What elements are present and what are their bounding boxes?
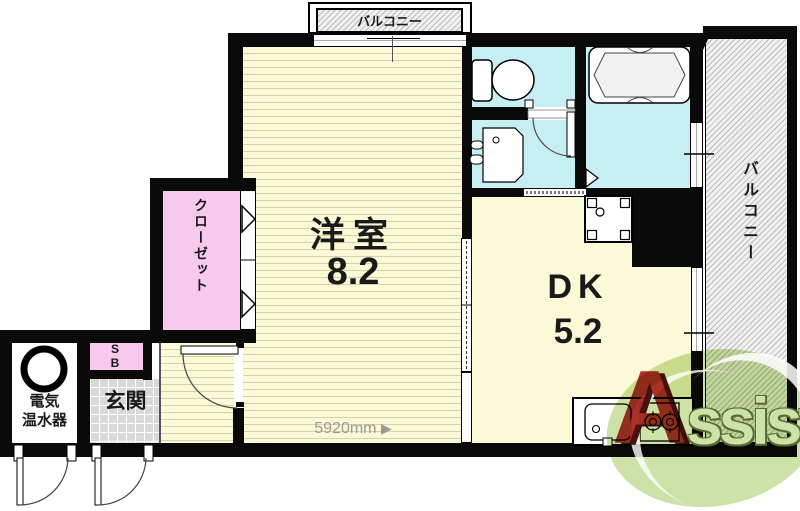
entrance-door-swing-icon xyxy=(98,458,146,505)
wall-segment xyxy=(462,33,472,238)
entrance-label: 玄関 xyxy=(90,385,161,415)
window-icon xyxy=(691,267,703,352)
wall-segment xyxy=(690,33,703,122)
window-icon xyxy=(314,34,466,47)
door-panel xyxy=(95,458,101,505)
hallway-floor xyxy=(161,343,234,443)
balcony-top: バルコニー xyxy=(316,8,463,33)
assist-logo-letter-a: A xyxy=(612,356,687,460)
wall-segment xyxy=(575,33,586,196)
wall-segment xyxy=(150,330,256,343)
wall-pipe-space xyxy=(632,188,703,267)
room-dk-area: 5.2 xyxy=(472,312,684,352)
room-toilet xyxy=(472,47,575,107)
window-icon xyxy=(690,122,703,188)
dimension-value: 5920mm xyxy=(314,420,376,437)
wall-segment xyxy=(77,343,90,457)
wall-segment xyxy=(0,330,161,343)
floorplan-canvas: バルコニー バルコニー xyxy=(0,0,800,511)
wall-segment xyxy=(462,188,632,197)
closet-label: クローゼット xyxy=(191,198,211,326)
room-washroom xyxy=(472,120,575,188)
shoe-box-label: SB xyxy=(108,342,122,372)
door-panel xyxy=(17,458,23,505)
dimension-arrow-icon: ▶ xyxy=(381,420,392,436)
water-heater-label-line2: 温水器 xyxy=(10,409,79,430)
room-bathroom xyxy=(586,47,690,188)
balcony-outer-wall xyxy=(703,26,797,38)
room-western-area: 8.2 xyxy=(243,251,463,294)
wall-segment xyxy=(0,330,12,457)
assist-logo-text: ssist xyxy=(686,388,800,454)
water-heater-label-line1: 電気 xyxy=(12,390,77,411)
wall-segment xyxy=(462,107,528,120)
dimension-label: 5920mm ▶ xyxy=(243,420,463,438)
balcony-top-label: バルコニー xyxy=(357,11,422,30)
wall-segment xyxy=(228,33,243,190)
wall-segment xyxy=(150,178,163,343)
door-threshold xyxy=(528,110,575,118)
balcony-right-label: バルコニー xyxy=(736,160,760,330)
entrance-door-swing-icon xyxy=(20,458,68,505)
wall-segment xyxy=(0,443,703,457)
room-dk-label: DK xyxy=(472,268,684,307)
